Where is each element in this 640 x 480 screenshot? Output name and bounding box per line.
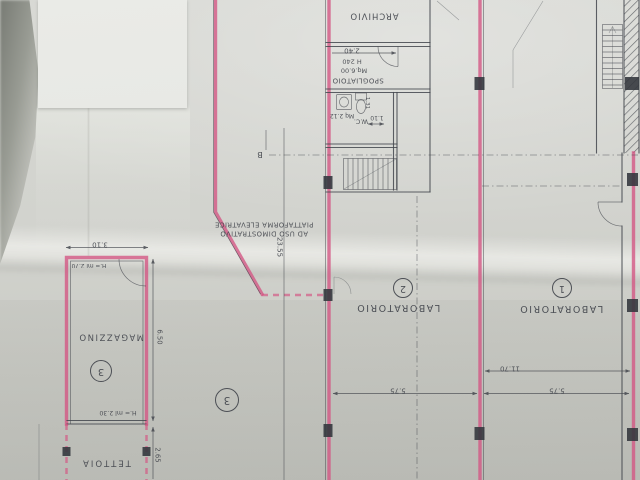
room-label-spogliatoio: SPOGLIATOIO — [332, 77, 384, 84]
open-area-number: 3 — [215, 388, 239, 412]
piattaforma-note-line2: AD USO DIMOSTRATIVO — [220, 230, 308, 237]
room-number-magazzino: 3 — [90, 360, 112, 382]
paper-patch — [38, 0, 187, 108]
wc-fixtures — [337, 93, 367, 114]
upper-staircase — [603, 25, 623, 89]
right-perimeter-wall — [598, 153, 638, 480]
dim-magazzino-length: 6.50 — [156, 329, 163, 344]
dim-lab2-span: 5.75 — [390, 387, 406, 394]
room-number-laboratorio-2: 2 — [393, 278, 413, 298]
spogliatoio-height: H 240 — [342, 58, 361, 65]
room-label-wc: W.C. — [354, 118, 368, 125]
hatched-perimeter-wall — [597, 0, 640, 153]
dim-wc-depth: 1.31 — [363, 97, 369, 109]
wc-area: Mq 2.12 — [330, 112, 354, 118]
dim-room-240: 2.40 — [344, 47, 360, 54]
dim-wc-width: 1.10 — [370, 114, 383, 120]
section-lines — [266, 1, 638, 480]
floor-plan-photo: ARCHIVIO 2.40 H 240 Mq.6.00 SPOGLIATOIO … — [0, 0, 640, 480]
dim-tettoia-depth: 2.65 — [154, 447, 161, 462]
room-label-tettoia: TETTOIA — [81, 458, 131, 467]
magazzino-height-front: H.= ml 2.70 — [72, 261, 107, 267]
magazzino-height-rear: H.= ml 2.30 — [99, 409, 136, 415]
section-marker-b: B — [257, 150, 263, 158]
piattaforma-note-line1: PIATTAFORMA ELEVATRICE — [215, 221, 314, 228]
tettoia-structure — [39, 424, 151, 480]
room-label-magazzino: MAGAZZINO — [78, 332, 144, 341]
room-label-archivio: ARCHIVIO — [349, 11, 398, 20]
spogliatoio-area: Mq.6.00 — [341, 67, 367, 74]
dim-magazzino-width: 3.10 — [92, 241, 108, 248]
dim-hall-length: 23.55 — [276, 237, 283, 257]
dim-lab1-width: 11.70 — [500, 365, 520, 372]
room-number-laboratorio-1: 1 — [552, 278, 572, 298]
room-label-laboratorio-1: LABORATORIO — [519, 303, 603, 313]
dim-lab1-span: 5.75 — [549, 387, 565, 394]
room-label-laboratorio-2: LABORATORIO — [356, 302, 440, 312]
lower-staircase — [344, 159, 397, 190]
